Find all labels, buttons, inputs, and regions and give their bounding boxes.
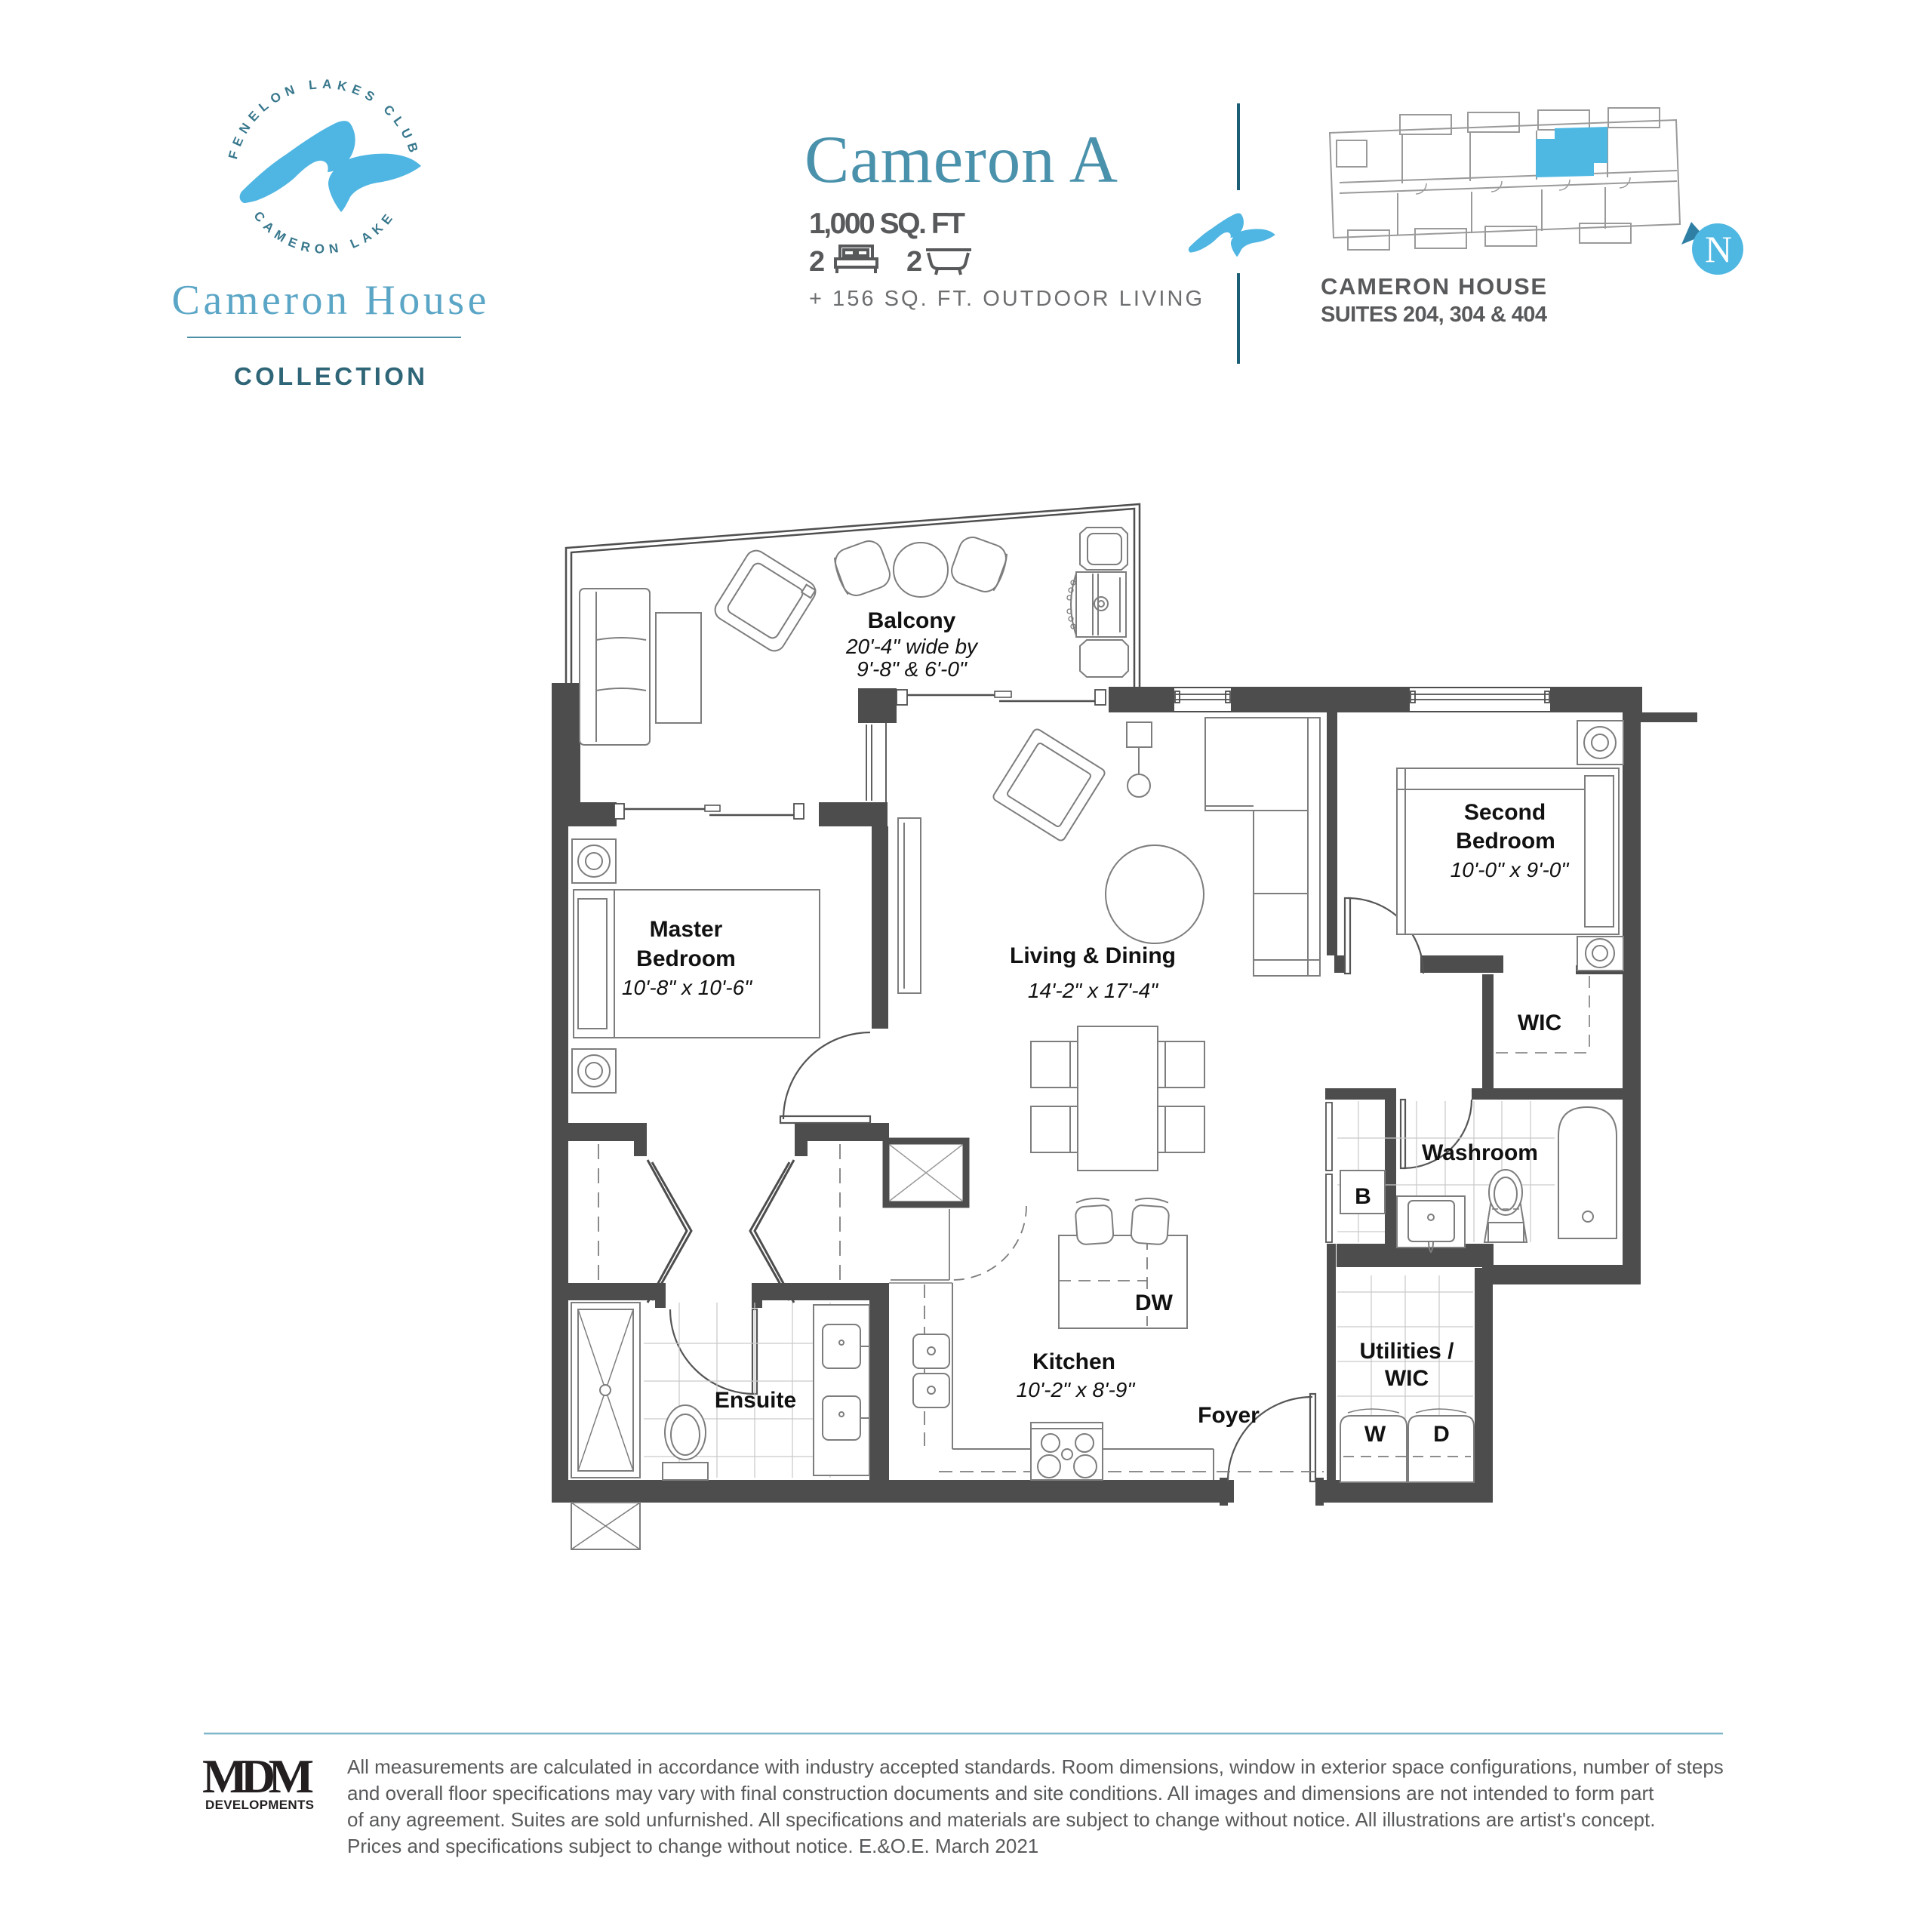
svg-text:Bedroom: Bedroom: [636, 946, 736, 971]
svg-text:and overall floor specificatio: and overall floor specifications may var…: [347, 1782, 1654, 1804]
svg-text:D: D: [1433, 1422, 1450, 1447]
svg-text:Utilities /: Utilities /: [1359, 1339, 1454, 1364]
svg-text:14'-2" x 17'-4": 14'-2" x 17'-4": [1028, 979, 1158, 1002]
svg-text:DEVELOPMENTS: DEVELOPMENTS: [205, 1798, 314, 1812]
svg-text:SUITES 204, 304 & 404: SUITES 204, 304 & 404: [1321, 303, 1547, 327]
svg-text:+ 156 SQ. FT. OUTDOOR LIVING: + 156 SQ. FT. OUTDOOR LIVING: [809, 287, 1202, 311]
svg-text:N: N: [1705, 228, 1732, 270]
svg-text:B: B: [1355, 1184, 1371, 1209]
svg-text:10'-2" x 8'-9": 10'-2" x 8'-9": [1017, 1378, 1136, 1401]
svg-text:Balcony: Balcony: [868, 608, 956, 633]
svg-text:Cameron A: Cameron A: [804, 123, 1118, 197]
svg-text:of any agreement. Suites are s: of any agreement. Suites are sold unfurn…: [347, 1808, 1655, 1831]
svg-text:Foyer: Foyer: [1198, 1403, 1260, 1428]
svg-text:Prices and specifications subj: Prices and specifications subject to cha…: [347, 1835, 1038, 1857]
svg-text:Ensuite: Ensuite: [715, 1388, 796, 1413]
svg-text:10'-0" x 9'-0": 10'-0" x 9'-0": [1451, 858, 1570, 881]
svg-text:1,000 SQ. FT: 1,000 SQ. FT: [809, 208, 965, 240]
svg-text:All measurements are calculate: All measurements are calculated in accor…: [347, 1755, 1724, 1778]
svg-text:W: W: [1364, 1422, 1386, 1447]
svg-text:2: 2: [906, 246, 922, 278]
svg-text:COLLECTION: COLLECTION: [234, 362, 429, 390]
svg-text:Kitchen: Kitchen: [1032, 1349, 1115, 1374]
svg-text:20'-4" wide by: 20'-4" wide by: [845, 635, 979, 658]
svg-text:MDM: MDM: [202, 1749, 314, 1803]
svg-text:Cameron House: Cameron House: [172, 277, 487, 324]
svg-text:WIC: WIC: [1385, 1366, 1429, 1391]
svg-text:9'-8" & 6'-0": 9'-8" & 6'-0": [857, 657, 968, 681]
svg-text:10'-8" x 10'-6": 10'-8" x 10'-6": [622, 976, 752, 999]
svg-text:Washroom: Washroom: [1422, 1140, 1538, 1165]
svg-text:DW: DW: [1135, 1291, 1174, 1315]
svg-text:Bedroom: Bedroom: [1456, 829, 1555, 854]
svg-text:CAMERON HOUSE: CAMERON HOUSE: [1321, 273, 1546, 300]
svg-text:2: 2: [809, 246, 825, 278]
svg-text:Master: Master: [650, 917, 723, 942]
svg-text:Second: Second: [1464, 800, 1546, 825]
svg-text:WIC: WIC: [1518, 1011, 1561, 1035]
svg-text:CAMERON LAKE: CAMERON LAKE: [251, 208, 398, 257]
svg-text:Living & Dining: Living & Dining: [1010, 943, 1176, 968]
